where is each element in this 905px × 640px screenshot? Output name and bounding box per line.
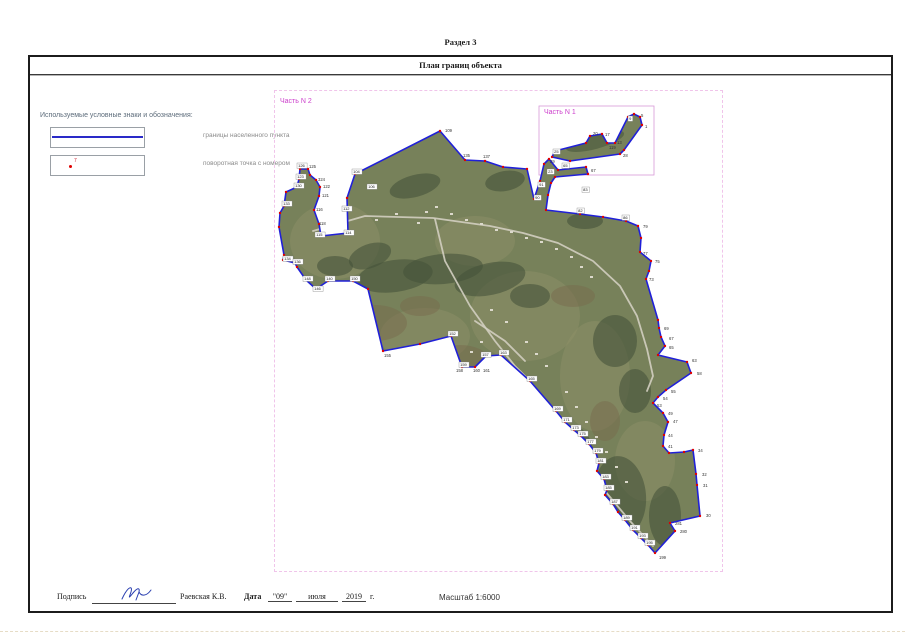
svg-text:152: 152 [449,331,456,336]
svg-text:115: 115 [316,232,323,237]
svg-text:119: 119 [609,145,616,150]
svg-text:29: 29 [550,159,555,164]
svg-text:90: 90 [535,195,540,200]
svg-text:73: 73 [649,277,654,282]
svg-text:79: 79 [643,224,648,229]
svg-text:34: 34 [698,448,703,453]
svg-text:324: 324 [318,177,326,182]
svg-text:122: 122 [323,184,331,189]
svg-text:54: 54 [663,396,668,401]
svg-text:53: 53 [657,403,662,408]
svg-text:126: 126 [298,163,305,168]
legend-item-boundary: границы населенного пункта [40,127,270,151]
svg-text:134: 134 [284,256,291,261]
svg-text:169: 169 [554,406,561,411]
svg-text:41: 41 [668,444,673,449]
svg-text:82: 82 [578,208,583,213]
svg-text:1: 1 [645,124,648,129]
svg-text:181: 181 [597,458,604,463]
date-month: июля [296,592,338,602]
part-1-label: Часть N 1 [544,109,576,116]
boundary-line-icon [52,136,143,138]
boundary-plan-map: 1091351377977757369676563585554534947444… [275,91,722,571]
svg-text:177: 177 [587,439,594,444]
svg-text:191: 191 [631,525,638,530]
svg-text:183: 183 [602,474,609,479]
svg-text:187: 187 [611,499,618,504]
svg-text:77: 77 [643,251,648,256]
svg-text:67: 67 [669,336,674,341]
svg-text:137: 137 [483,154,491,159]
legend-item-turn-point: 7 поворотная точка с номером [40,155,270,179]
section-title: Раздел 3 [28,37,893,47]
svg-text:158: 158 [456,368,464,373]
date-day: "09" [268,592,292,602]
svg-text:49: 49 [668,411,673,416]
svg-text:114: 114 [345,230,352,235]
date-label: Дата [244,592,261,601]
svg-text:106: 106 [368,184,375,189]
svg-text:195: 195 [646,540,653,545]
part-2-label: Часть N 2 [280,98,312,105]
svg-text:30: 30 [706,513,711,518]
svg-text:155: 155 [384,353,392,358]
plan-title: План границ объекта [419,60,502,70]
page-edge-line [0,631,905,632]
handwritten-signature [120,584,154,602]
svg-text:69: 69 [664,326,669,331]
svg-text:125: 125 [309,164,317,169]
legend: Используемые условные знаки и обозначени… [40,112,270,183]
svg-text:118: 118 [319,221,326,226]
svg-text:75: 75 [655,259,660,264]
svg-text:281: 281 [675,521,683,526]
svg-text:175: 175 [579,431,586,436]
turn-point-symbol: 7 [50,155,145,176]
svg-text:163: 163 [500,350,507,355]
svg-text:109: 109 [445,128,453,133]
signature-label: Подпись [57,592,86,601]
turn-point-dot-icon [69,165,72,168]
svg-text:146: 146 [314,286,321,291]
svg-text:185: 185 [605,485,612,490]
svg-text:173: 173 [572,425,579,430]
svg-text:148: 148 [304,276,311,281]
svg-text:63: 63 [692,358,697,363]
svg-text:58: 58 [697,371,702,376]
scale-label: Масштаб 1:6000 [439,593,500,602]
svg-text:86: 86 [623,215,628,220]
svg-text:17: 17 [605,132,610,137]
svg-text:5: 5 [641,113,644,118]
date-year: 2019 [342,592,366,602]
svg-text:67: 67 [591,168,596,173]
svg-text:157: 157 [482,352,489,357]
svg-text:179: 179 [594,448,601,453]
svg-text:165: 165 [528,376,535,381]
svg-text:47: 47 [673,419,678,424]
svg-text:55: 55 [671,389,676,394]
svg-text:91: 91 [539,182,544,187]
svg-text:32: 32 [702,472,707,477]
svg-text:20: 20 [593,131,598,136]
legend-title: Используемые условные знаки и обозначени… [40,112,270,119]
svg-text:159: 159 [460,362,467,367]
svg-text:280: 280 [680,529,688,534]
svg-text:112: 112 [343,206,350,211]
svg-text:104: 104 [353,169,360,174]
signature-line [92,584,176,604]
year-suffix: г. [370,592,374,601]
svg-text:83: 83 [583,187,588,192]
svg-text:44: 44 [668,433,673,438]
svg-text:123: 123 [297,174,304,179]
signature-name: Раевская К.В. [180,592,227,601]
svg-text:193: 193 [639,533,646,538]
map-frame: 1091351377977757369676563585554534947444… [274,90,723,572]
svg-text:28: 28 [623,153,628,158]
boundary-line-symbol [50,127,145,148]
svg-text:121: 121 [322,193,330,198]
svg-text:65: 65 [563,163,568,168]
plan-title-band: План границ объекта [30,57,891,75]
turn-point-number: 7 [74,158,77,164]
svg-text:13: 13 [617,140,622,145]
svg-text:150: 150 [351,276,358,281]
svg-text:161: 161 [483,368,491,373]
svg-text:189: 189 [623,515,630,520]
svg-text:171: 171 [563,417,570,422]
svg-text:136: 136 [294,259,301,264]
document-frame: План границ объекта Используемые условны… [28,55,893,613]
svg-text:199: 199 [659,555,667,560]
svg-text:23: 23 [548,169,553,174]
svg-text:160: 160 [473,368,481,373]
satellite-terrain [279,131,700,553]
svg-text:135: 135 [463,153,471,158]
svg-text:65: 65 [669,345,674,350]
svg-text:133: 133 [283,201,290,206]
svg-text:140: 140 [326,276,333,281]
svg-text:31: 31 [703,483,708,488]
svg-text:116: 116 [316,207,323,212]
svg-text:25: 25 [554,149,559,154]
svg-text:130: 130 [295,183,302,188]
